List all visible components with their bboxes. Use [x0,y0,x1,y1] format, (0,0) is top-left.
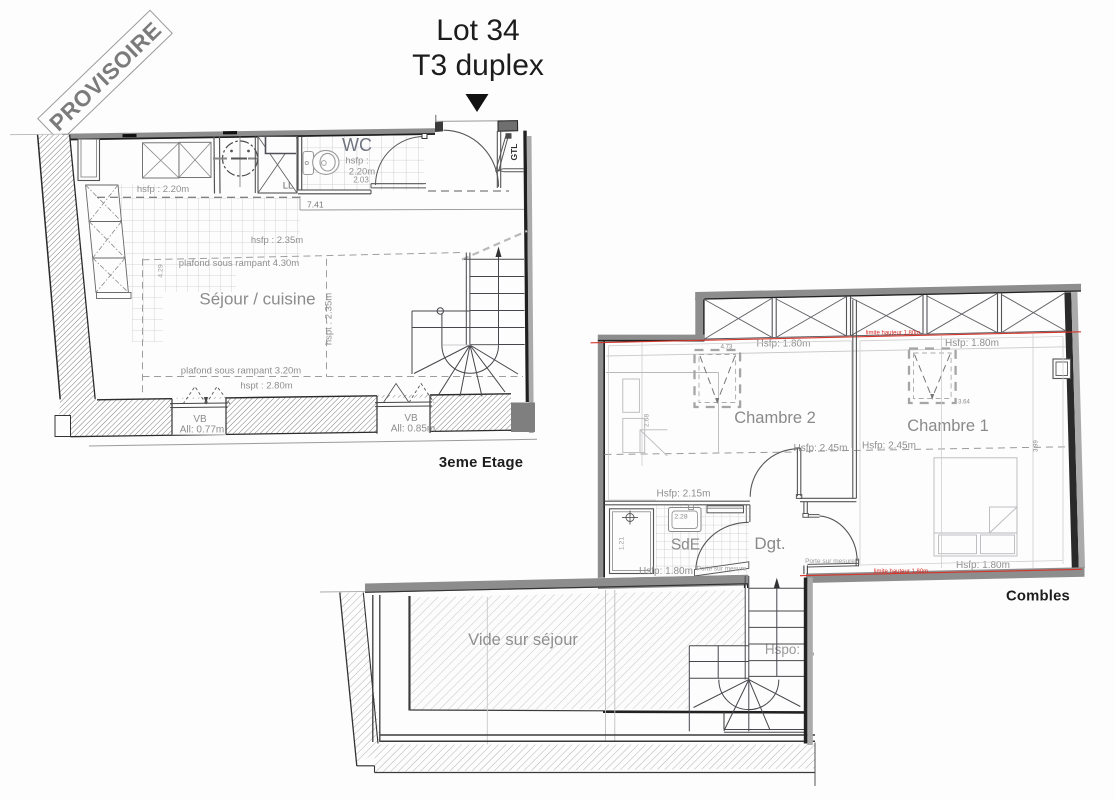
svg-text:4.73: 4.73 [721,345,733,351]
svg-text:Chambre 1: Chambre 1 [907,417,989,435]
svg-text:VB: VB [404,413,418,424]
svg-text:hspt : 2.80m: hspt : 2.80m [240,380,292,391]
svg-text:LL: LL [283,181,294,192]
svg-text:All: 0.77m: All: 0.77m [180,425,224,436]
svg-text:plafond sous rampant 3.20m: plafond sous rampant 3.20m [181,365,301,376]
svg-text:GTL: GTL [509,144,519,161]
svg-text:Séjour / cuisine: Séjour / cuisine [199,290,315,309]
svg-text:7.41: 7.41 [307,200,324,210]
svg-text:Hsfp: 2.15m: Hsfp: 2.15m [657,489,711,500]
svg-text:4.29: 4.29 [158,264,165,277]
svg-text:VB: VB [193,414,207,425]
svg-text:Chambre 2: Chambre 2 [734,409,816,427]
svg-text:Lot 34: Lot 34 [436,14,519,47]
svg-text:Combles: Combles [1006,589,1070,605]
svg-text:WC: WC [342,135,372,155]
svg-text:hspt : 2.35m: hspt : 2.35m [324,293,335,345]
svg-text:hsfp : 2.35m: hsfp : 2.35m [251,235,303,246]
svg-text:All: 0.85m: All: 0.85m [391,424,435,435]
svg-text:2.28: 2.28 [674,513,687,520]
svg-text:2.03: 2.03 [353,176,369,185]
svg-text:hsfp :: hsfp : [345,156,368,167]
svg-text:Hsfp: 1.80m: Hsfp: 1.80m [757,338,811,349]
svg-text:limite hauteur 1.80m: limite hauteur 1.80m [874,569,928,575]
svg-text:T3 duplex: T3 duplex [412,49,544,82]
svg-text:3.99: 3.99 [1034,440,1040,452]
svg-text:Dgt.: Dgt. [754,534,785,553]
svg-text:Vide sur séjour: Vide sur séjour [468,631,578,649]
svg-text:3eme Etage: 3eme Etage [439,455,523,471]
svg-text:hsfp : 2.20m: hsfp : 2.20m [137,184,189,195]
svg-text:SdE: SdE [671,537,700,554]
svg-text:Hsfp: 2.45m: Hsfp: 2.45m [794,443,848,454]
svg-text:3.64: 3.64 [958,400,970,406]
svg-text:Porte sur mesure: Porte sur mesure [805,558,855,565]
svg-text:Hsfp: 1.80m: Hsfp: 1.80m [945,338,999,349]
svg-text:plafond sous rampant 4.30m: plafond sous rampant 4.30m [179,258,299,269]
svg-text:limite hauteur 1.80m: limite hauteur 1.80m [866,330,920,336]
svg-text:Hsfp: 1.80m: Hsfp: 1.80m [639,566,693,577]
svg-text:Hsfp: 2.45m: Hsfp: 2.45m [862,441,916,452]
svg-text:1.21: 1.21 [619,537,626,550]
svg-text:Porte sur mesure: Porte sur mesure [697,566,747,573]
